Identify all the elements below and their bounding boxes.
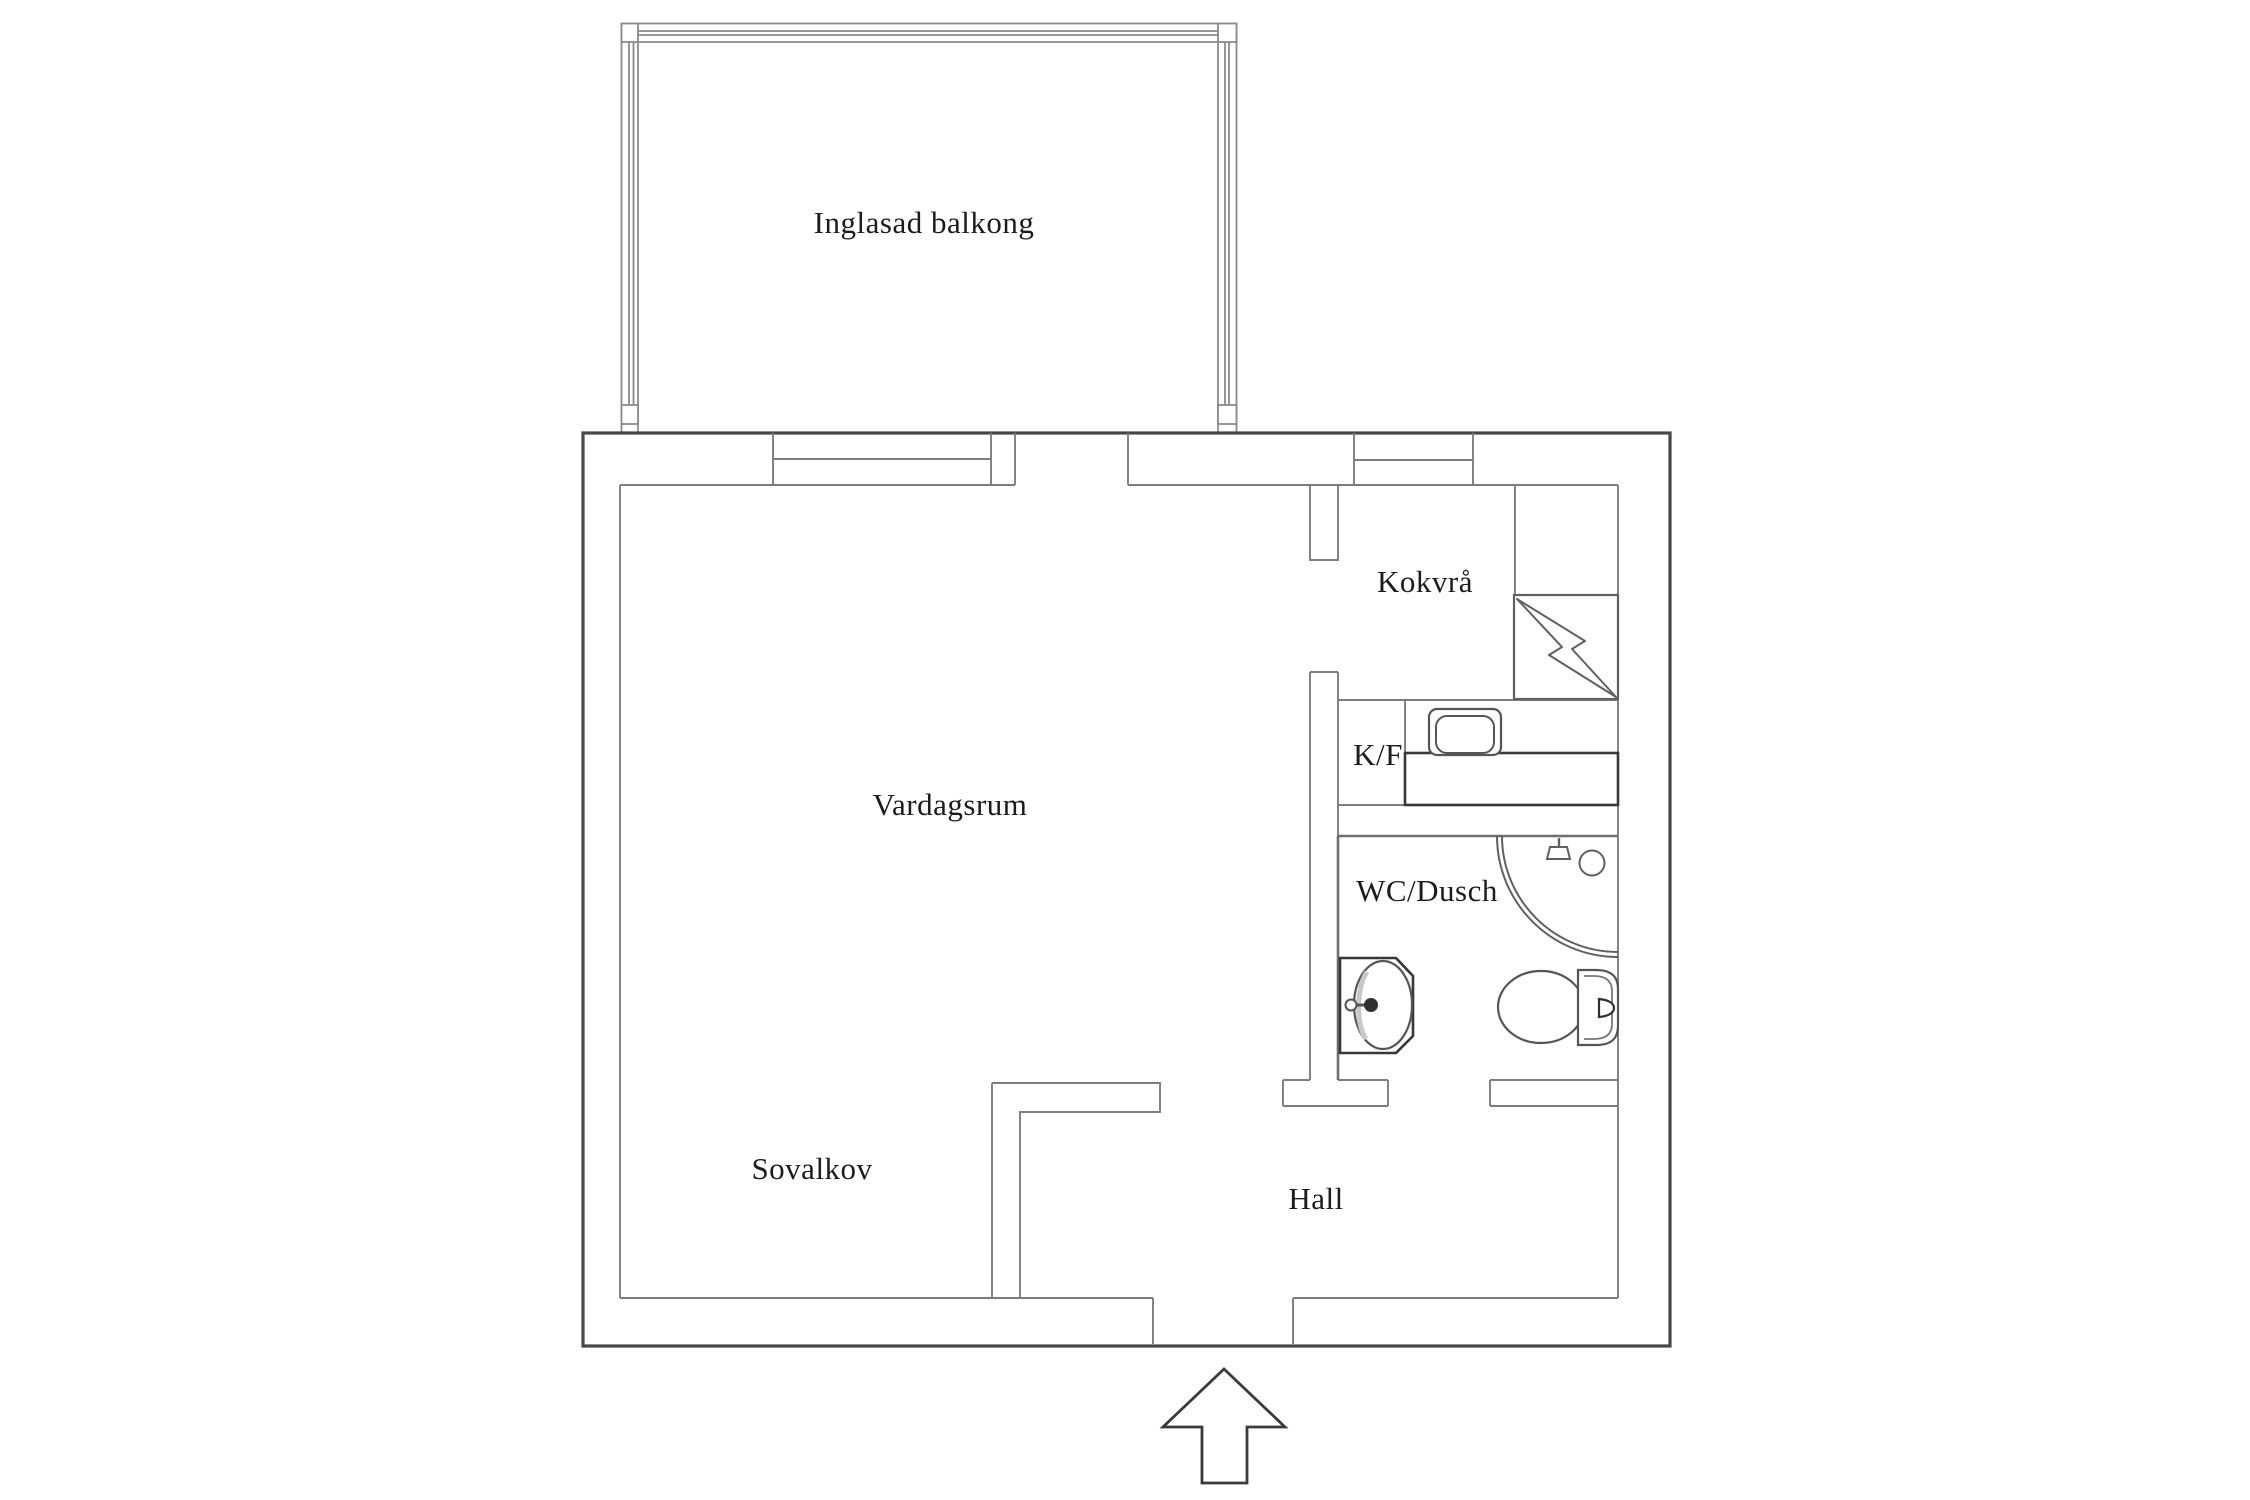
floor-plan-drawing [0, 0, 2250, 1500]
room-label-fridge-freezer: K/F [1353, 737, 1403, 773]
floor-drain-icon [1580, 851, 1605, 876]
kitchen-counter [1405, 753, 1618, 805]
room-label-hall: Hall [1288, 1181, 1343, 1217]
room-label-living-room: Vardagsrum [873, 787, 1028, 823]
room-label-wc-shower: WC/Dusch [1356, 873, 1498, 909]
stove-icon [1514, 595, 1618, 699]
toilet-icon [1498, 970, 1618, 1045]
kitchen-sink-icon [1429, 709, 1501, 755]
room-label-kitchenette: Kokvrå [1377, 564, 1473, 600]
flush-button [1599, 999, 1614, 1017]
floor-plan: Inglasad balkong Vardagsrum Kokvrå K/F W… [0, 0, 2250, 1500]
building-outline [583, 433, 1670, 1346]
entrance-arrow-icon [1163, 1369, 1285, 1483]
washbasin-icon [1340, 958, 1413, 1053]
room-label-sleeping-alcove: Sovalkov [751, 1151, 872, 1187]
room-label-glazed-balcony: Inglasad balkong [814, 205, 1035, 241]
